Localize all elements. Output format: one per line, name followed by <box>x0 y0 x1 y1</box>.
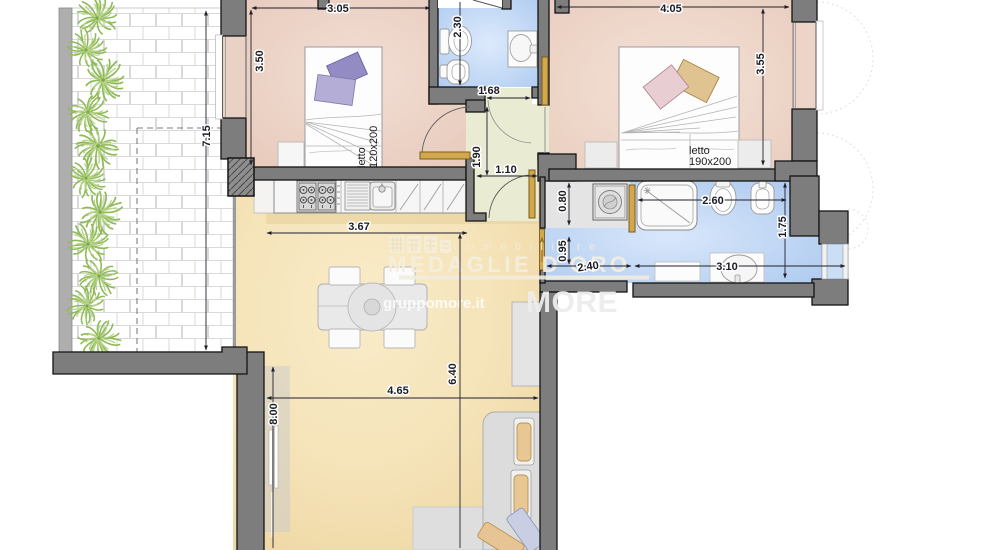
svg-text:0.95: 0.95 <box>557 240 569 261</box>
svg-text:8.00: 8.00 <box>268 403 280 424</box>
svg-text:6.40: 6.40 <box>447 363 459 384</box>
svg-text:1.75: 1.75 <box>777 216 789 237</box>
svg-text:1.68: 1.68 <box>478 85 499 97</box>
svg-text:2.30: 2.30 <box>452 16 464 37</box>
svg-text:120x200: 120x200 <box>368 126 380 168</box>
svg-text:0.80: 0.80 <box>557 190 569 211</box>
svg-text:MORE: MORE <box>526 286 618 319</box>
svg-text:7.15: 7.15 <box>201 125 213 146</box>
svg-text:2.60: 2.60 <box>702 195 723 207</box>
svg-text:3.50: 3.50 <box>254 50 266 71</box>
svg-text:190x200: 190x200 <box>689 156 731 168</box>
svg-text:1.10: 1.10 <box>495 164 516 176</box>
svg-text:1.90: 1.90 <box>471 146 483 167</box>
svg-text:gruppomore.it: gruppomore.it <box>383 295 485 312</box>
svg-text:letto: letto <box>356 147 368 168</box>
svg-text:4.05: 4.05 <box>660 3 681 15</box>
svg-text:3.05: 3.05 <box>327 3 348 15</box>
svg-text:3.10: 3.10 <box>716 261 737 273</box>
svg-text:3.67: 3.67 <box>348 221 369 233</box>
svg-text:3.55: 3.55 <box>755 53 767 74</box>
svg-text:4.65: 4.65 <box>387 385 408 397</box>
